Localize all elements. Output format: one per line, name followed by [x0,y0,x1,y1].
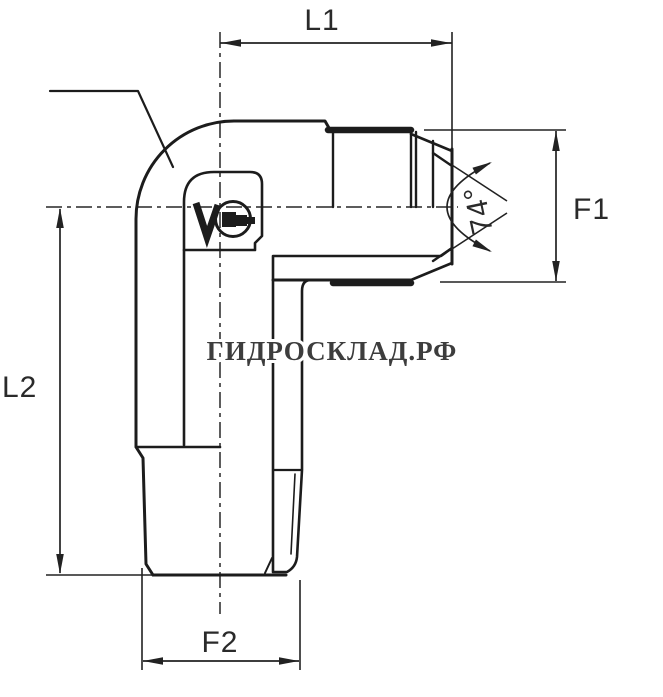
logo-plug-glyph [222,212,236,227]
f2-label: F2 [201,626,238,659]
technical-drawing-canvas: ГИДРОСКЛАД.РФ L1 L2 F1 F2 [0,0,663,697]
leader-line [50,91,173,167]
dimension-l2: L2 [2,208,153,575]
logo-plug-glyph [236,215,247,226]
l2-label: L2 [2,371,37,404]
logo-plug-glyph [247,217,255,224]
f1-label: F1 [573,193,610,226]
centerlines [46,32,458,614]
angle-label: 74° [458,183,500,237]
section-hatch-region [273,248,452,572]
dimension-f2: F2 [142,568,300,670]
elbow-fitting-drawing: ГИДРОСКЛАД.РФ L1 L2 F1 F2 [0,0,663,697]
cone-face-top [433,153,452,166]
cone-face-bottom [433,248,452,261]
watermark-text: ГИДРОСКЛАД.РФ [207,336,458,366]
l1-label: L1 [304,4,339,37]
angle-annotation: 74° [447,159,507,256]
